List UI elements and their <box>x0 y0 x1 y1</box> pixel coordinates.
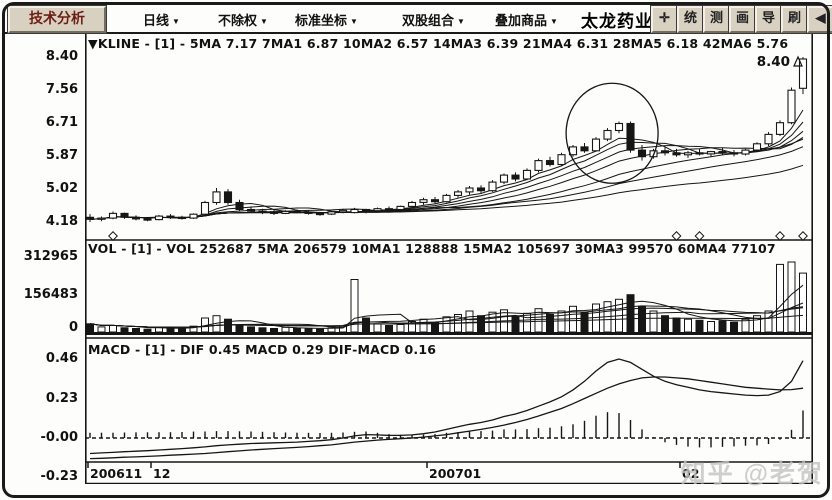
export-tool-button[interactable]: 导 <box>755 6 782 33</box>
macd-axis-label: 0.23 <box>46 392 78 406</box>
x-tick-label: 200701 <box>429 466 481 481</box>
macd-axis-label: -0.00 <box>41 431 78 445</box>
price-axis-label: 6.71 <box>46 116 78 130</box>
event-diamond-marker <box>799 232 807 240</box>
chart-canvas[interactable]: 8.402006111220070102 <box>85 33 813 484</box>
menu-overlay-label: 叠加商品 <box>495 13 547 28</box>
price-axis-label: 5.02 <box>46 182 78 196</box>
chevron-down-icon: ▼ <box>172 17 180 26</box>
menu-overlay[interactable]: 叠加商品▼ <box>495 10 558 29</box>
export-icon: 导 <box>762 10 775 25</box>
macd-axis-label: -0.23 <box>41 470 78 484</box>
price-axis-label: 8.40 <box>46 50 78 64</box>
stock-name: 太龙药业 <box>581 7 653 32</box>
stats-tool-button[interactable]: 统 <box>677 6 704 33</box>
menu-dual-stock[interactable]: 双股组合▼ <box>402 10 465 29</box>
collapse-panel-button[interactable]: ◀ <box>807 6 832 33</box>
toolbar: 技术分析 日线▼ 不除权▼ 标准坐标▼ 双股组合▼ 叠加商品▼ 太龙药业 ✛ 统… <box>5 5 827 34</box>
menu-ex-rights[interactable]: 不除权▼ <box>218 10 268 29</box>
collapse-icon: ◀ <box>816 10 826 25</box>
refresh-icon: 刷 <box>788 10 801 25</box>
menu-ex-rights-label: 不除权 <box>218 13 257 28</box>
price-axis-label: 4.18 <box>46 215 78 229</box>
refresh-tool-button[interactable]: 刷 <box>781 6 808 33</box>
macd-indicator-header: MACD - [1] - DIF 0.45 MACD 0.29 DIF-MACD… <box>88 342 436 357</box>
watermark: 知乎 @老贺 <box>681 454 824 490</box>
macd-curves <box>90 359 803 459</box>
event-diamond-marker <box>695 232 703 240</box>
kline-ma-lines <box>90 110 803 219</box>
volume-indicator-header: VOL - [1] - VOL 252687 5MA 206579 10MA1 … <box>88 241 776 256</box>
menu-period[interactable]: 日线▼ <box>143 10 180 29</box>
volume-axis-label: 312965 <box>24 250 78 264</box>
menu-coordinates[interactable]: 标准坐标▼ <box>295 10 358 29</box>
menu-dual-stock-label: 双股组合 <box>402 13 454 28</box>
last-price-label: 8.40 <box>757 54 790 70</box>
event-diamond-marker <box>109 232 117 240</box>
measure-icon: 测 <box>710 10 723 25</box>
chevron-down-icon: ▼ <box>260 17 268 26</box>
event-diamond-marker <box>776 232 784 240</box>
volume-axis-label: 0 <box>69 321 78 335</box>
candles <box>87 57 807 222</box>
chevron-down-icon: ▼ <box>550 17 558 26</box>
move-icon: ✛ <box>659 10 670 25</box>
app-window: 技术分析 日线▼ 不除权▼ 标准坐标▼ 双股组合▼ 叠加商品▼ 太龙药业 ✛ 统… <box>0 0 832 500</box>
price-axis-label: 7.56 <box>46 83 78 97</box>
move-tool-button[interactable]: ✛ <box>651 6 678 33</box>
technical-analysis-button[interactable]: 技术分析 <box>8 6 106 33</box>
highlight-circle-annotation <box>566 83 658 183</box>
measure-tool-button[interactable]: 测 <box>703 6 730 33</box>
chevron-down-icon: ▼ <box>350 17 358 26</box>
macd-axis-label: 0.46 <box>46 352 78 366</box>
kline-indicator-header[interactable]: ▼KLINE - [1] - 5MA 7.17 7MA1 6.87 10MA2 … <box>88 36 788 51</box>
price-axis-label: 5.87 <box>46 149 78 163</box>
stats-icon: 统 <box>684 10 697 25</box>
y-axis-column: 8.40 7.56 6.71 5.87 5.02 4.18 312965 156… <box>0 0 83 500</box>
volume-axis-label: 156483 <box>24 288 78 302</box>
x-tick-label: 12 <box>153 466 170 481</box>
draw-icon: 画 <box>736 10 749 25</box>
menu-coordinates-label: 标准坐标 <box>295 13 347 28</box>
x-tick-label: 200611 <box>90 466 142 481</box>
chevron-down-icon: ▼ <box>457 17 465 26</box>
menu-period-label: 日线 <box>143 13 169 28</box>
draw-tool-button[interactable]: 画 <box>729 6 756 33</box>
event-diamond-marker <box>672 232 680 240</box>
